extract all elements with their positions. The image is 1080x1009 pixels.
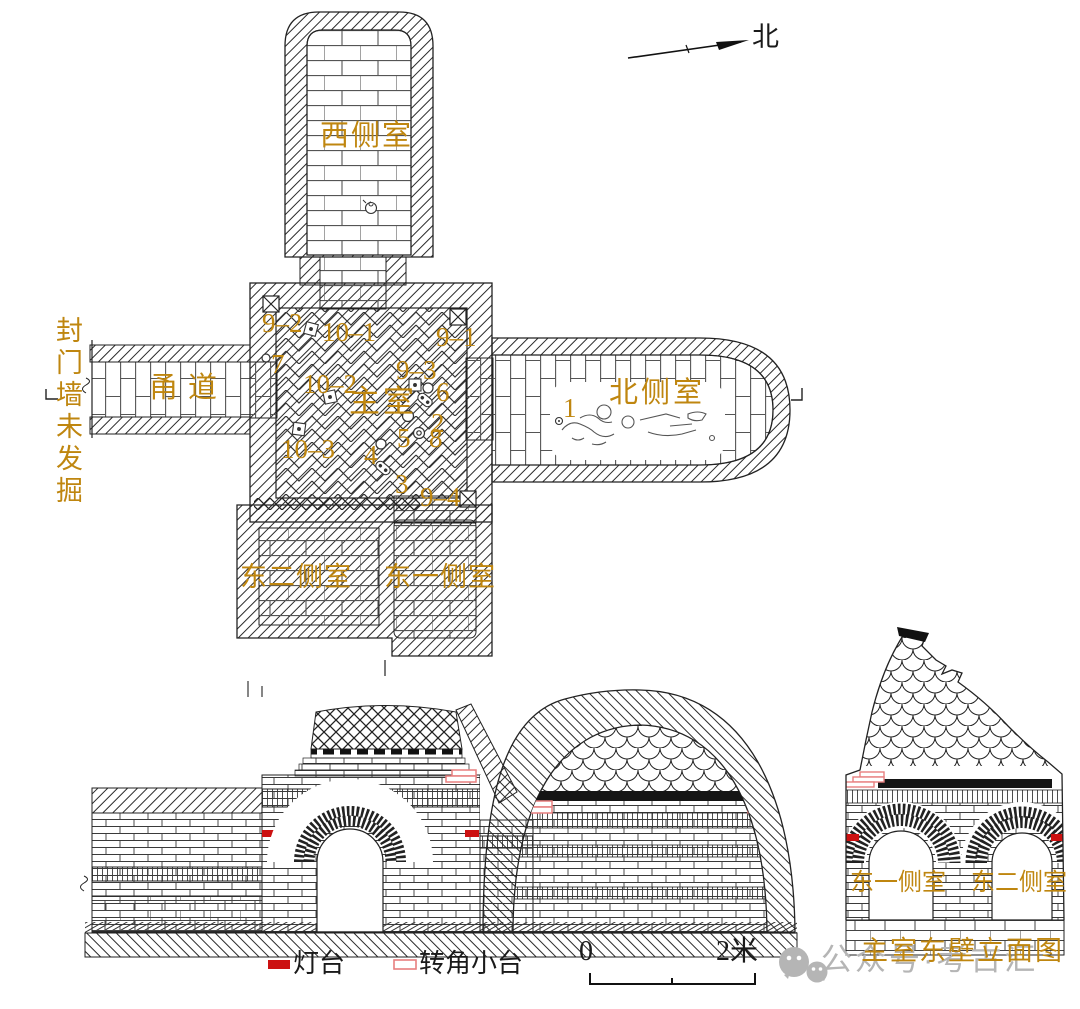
find-label-9-1: 9–1: [436, 324, 477, 351]
west-passage: [300, 257, 406, 285]
find-label-3: 3: [395, 471, 409, 498]
find-label-9-4: 9–4: [420, 484, 461, 511]
tomb-plan-and-elevation-drawing: [0, 0, 1080, 1009]
elevation-door-section: [248, 681, 480, 932]
label-west-chamber: 西侧室: [320, 122, 413, 151]
label-corridor: 甬道: [149, 374, 227, 403]
north-chamber: [492, 338, 802, 482]
legend-lamp-swatch: [268, 960, 290, 969]
label-seal-wall-note: 封门墙未发掘: [53, 316, 80, 508]
dome-dash-course: [311, 749, 462, 758]
legend-lamp-label: 灯台: [293, 951, 345, 977]
main-chamber-east-wall-elevation: [838, 616, 1073, 955]
find-label-10-2: 10–2: [303, 371, 357, 398]
dome-lattice: [311, 706, 462, 750]
scale-bar-end: 2米: [716, 938, 758, 966]
label-main-chamber: 主室: [349, 386, 417, 417]
find-label-9-2: 9–2: [262, 310, 303, 337]
north-arrow-label: 北: [752, 24, 779, 51]
find-label-6: 6: [436, 379, 450, 406]
find-label-4: 4: [364, 442, 378, 469]
legend-corner-platform-label: 转角小台: [419, 951, 523, 977]
scale-bar: [590, 973, 755, 984]
find-label-10-1: 10–1: [322, 319, 376, 346]
elevation-label-east-chamber-1: 东一侧室: [850, 871, 946, 895]
label-east-chamber-2: 东二侧室: [240, 564, 352, 591]
scale-bar-start: 0: [579, 938, 593, 966]
north-arrow: [628, 40, 749, 58]
label-east-chamber-1: 东一侧室: [384, 564, 496, 591]
find-label-9-3: 9–3: [396, 357, 437, 384]
find-label-1: 1: [563, 395, 577, 422]
find-label-7: 7: [271, 351, 285, 378]
east-wall-dome-scales: [838, 616, 1072, 772]
vault-black-band: [505, 791, 775, 801]
elevation-label-east-chamber-2: 东二侧室: [971, 871, 1067, 895]
find-label-5: 5: [397, 425, 411, 452]
section-bracket-right: [791, 388, 802, 400]
arch-doorway-opening: [317, 829, 383, 932]
tomb-excavation-figure: 北 西侧室 封门墙未发掘 甬道 主室 北侧室 东二侧室 东一侧室 9–2 10–…: [0, 0, 1080, 1009]
elevation-caption: 主室东壁立面图: [861, 938, 1064, 965]
label-north-chamber: 北侧室: [609, 379, 705, 408]
find-label-8: 8: [429, 425, 443, 452]
elevation-left-wall: [81, 788, 263, 932]
east-wall-black-band: [878, 779, 1052, 788]
west-passage-floor: [320, 257, 386, 285]
south-wall-elevation: [81, 681, 798, 957]
elevation-main-vault: [456, 690, 795, 933]
excavation-limit-break: [83, 378, 90, 393]
legend-corner-swatch: [394, 960, 416, 969]
find-label-10-3: 10–3: [281, 436, 335, 463]
